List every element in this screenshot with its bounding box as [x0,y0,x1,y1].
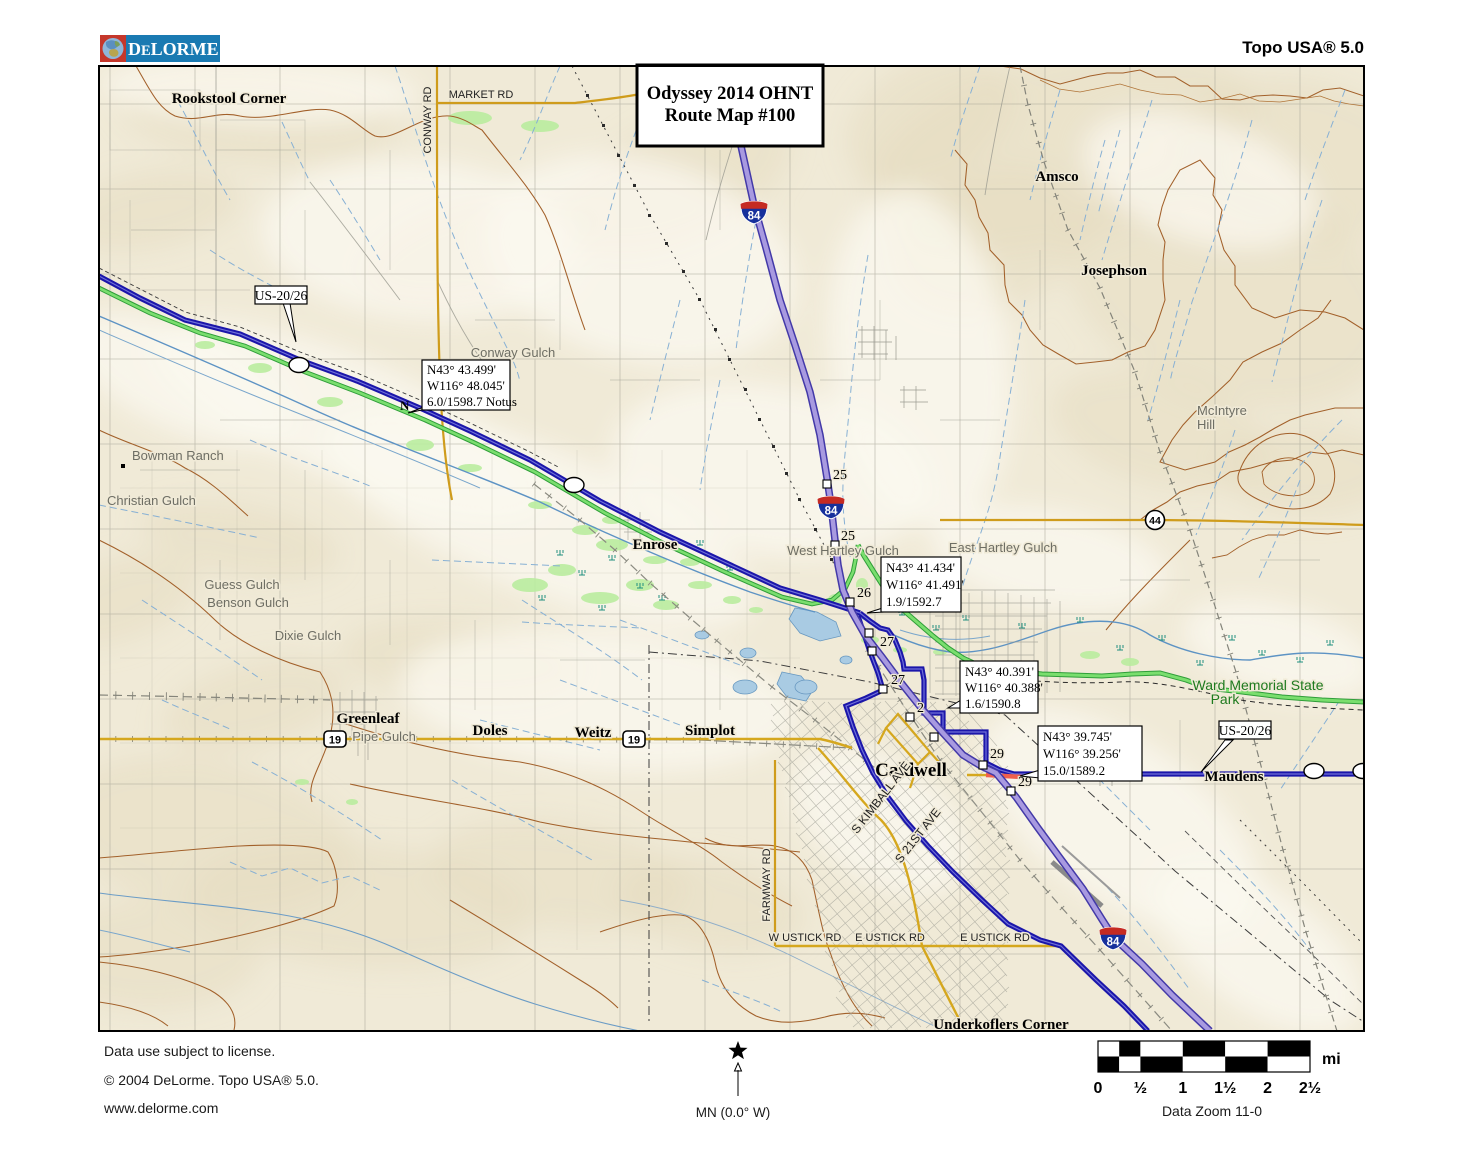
svg-text:N43° 43.499': N43° 43.499' [427,362,496,377]
svg-text:MN (0.0° W): MN (0.0° W) [696,1105,770,1120]
svg-text:26: 26 [857,586,871,601]
svg-text:Greenleaf: Greenleaf [336,711,400,727]
svg-text:19: 19 [628,735,640,747]
svg-text:27: 27 [880,635,894,650]
svg-text:2½: 2½ [1299,1080,1321,1097]
svg-text:N43° 40.391': N43° 40.391' [965,664,1034,679]
svg-text:84: 84 [748,211,761,223]
svg-text:Pipe Gulch: Pipe Gulch [352,729,416,744]
svg-text:27: 27 [891,673,905,688]
svg-text:www.delorme.com: www.delorme.com [103,1100,218,1116]
svg-text:W116° 39.256': W116° 39.256' [1043,746,1121,761]
svg-text:N43° 39.745': N43° 39.745' [1043,729,1112,744]
svg-text:Conway Gulch: Conway Gulch [471,345,556,360]
svg-text:W USTICK RD: W USTICK RD [769,932,842,944]
svg-text:Guess Gulch: Guess Gulch [204,577,279,592]
svg-text:MARKET RD: MARKET RD [449,89,514,101]
svg-text:E USTICK RD: E USTICK RD [855,932,925,944]
svg-text:29: 29 [990,747,1004,762]
svg-text:25: 25 [833,468,847,483]
svg-text:Topo USA® 5.0: Topo USA® 5.0 [1242,38,1364,57]
svg-text:84: 84 [825,506,838,518]
svg-text:Route Map #100: Route Map #100 [665,106,796,126]
svg-text:Dixie Gulch: Dixie Gulch [275,628,341,643]
svg-text:W116° 40.388': W116° 40.388' [965,680,1043,695]
svg-text:N43° 41.434': N43° 41.434' [886,560,955,575]
svg-text:1.9/1592.7: 1.9/1592.7 [886,594,942,609]
svg-text:Enrose: Enrose [633,537,678,553]
svg-text:Data use subject to license.: Data use subject to license. [104,1043,275,1059]
svg-text:Rookstool Corner: Rookstool Corner [172,91,287,107]
svg-text:Caldwell: Caldwell [875,760,947,781]
svg-text:Bowman Ranch: Bowman Ranch [132,448,224,463]
svg-text:Hill: Hill [1197,417,1215,432]
svg-text:W116° 48.045': W116° 48.045' [427,378,505,393]
svg-text:½: ½ [1134,1080,1147,1097]
svg-text:84: 84 [1107,937,1120,949]
svg-text:Simplot: Simplot [685,723,735,739]
svg-text:Odyssey 2014 OHNT: Odyssey 2014 OHNT [647,84,814,104]
svg-text:Amsco: Amsco [1035,169,1078,185]
svg-text:East Hartley Gulch: East Hartley Gulch [949,540,1057,555]
svg-text:15.0/1589.2: 15.0/1589.2 [1043,763,1105,778]
svg-text:US-20/26: US-20/26 [1219,723,1272,738]
svg-text:19: 19 [329,735,341,747]
svg-text:US-20/26: US-20/26 [255,288,308,303]
svg-text:© 2004 DeLorme. Topo USA® 5.0.: © 2004 DeLorme. Topo USA® 5.0. [104,1072,319,1088]
svg-text:1: 1 [1178,1080,1187,1097]
svg-text:2: 2 [1263,1080,1272,1097]
svg-text:Weitz: Weitz [575,725,612,741]
svg-text:N: N [400,398,410,413]
svg-text:25: 25 [841,529,855,544]
svg-text:Maudens: Maudens [1204,769,1263,785]
svg-text:Josephson: Josephson [1081,263,1148,279]
svg-text:West Hartley Gulch: West Hartley Gulch [787,543,899,558]
svg-text:6.0/1598.7 Notus: 6.0/1598.7 Notus [427,394,517,409]
svg-text:E USTICK RD: E USTICK RD [960,932,1030,944]
svg-text:1½: 1½ [1214,1080,1236,1097]
svg-text:W116° 41.491': W116° 41.491' [886,577,964,592]
svg-text:mi: mi [1322,1051,1341,1068]
svg-text:44: 44 [1149,515,1161,527]
svg-text:McIntyre: McIntyre [1197,403,1247,418]
svg-text:Park: Park [1211,691,1241,707]
svg-text:Doles: Doles [473,723,508,739]
svg-text:1.6/1590.8: 1.6/1590.8 [965,696,1021,711]
svg-text:FARMWAY RD: FARMWAY RD [761,848,773,921]
svg-text:Data Zoom 11-0: Data Zoom 11-0 [1162,1103,1262,1119]
svg-text:Christian Gulch: Christian Gulch [107,493,196,508]
svg-text:2: 2 [917,701,924,716]
svg-text:Benson Gulch: Benson Gulch [207,595,289,610]
svg-text:0: 0 [1094,1080,1103,1097]
svg-text:CONWAY RD: CONWAY RD [422,86,434,153]
